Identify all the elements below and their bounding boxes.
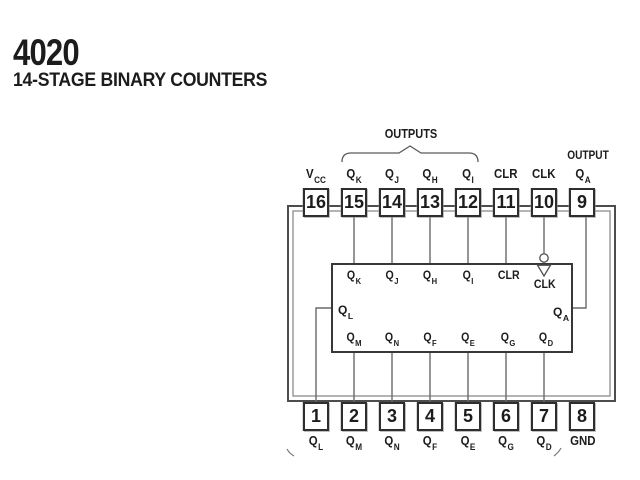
block-port-qd-base: Q <box>539 330 547 344</box>
block-port-qf: QF <box>423 330 436 346</box>
pin-12-number-box: 12 <box>455 188 481 217</box>
pin-11-name: CLR <box>494 166 518 184</box>
block-port-qi-sub: I <box>471 276 473 286</box>
block-port-qk-sub: K <box>356 276 361 286</box>
pin-5-name-sub: E <box>470 442 475 452</box>
pin-4-name: QF <box>423 433 437 451</box>
block-port-qh-sub: H <box>432 276 437 286</box>
block-port-qn-sub: N <box>394 338 399 348</box>
block-port-qk-base: Q <box>347 268 355 282</box>
datasheet-page: { "header": { "part_number": "4020", "de… <box>0 0 640 480</box>
pin-11-name-base: CLR <box>494 166 518 181</box>
pin-12-name-base: Q <box>462 166 471 181</box>
pin-13-number-box: 13 <box>417 188 443 217</box>
output-single-label: OUTPUT <box>567 150 609 162</box>
pin-13-name-sub: H <box>432 175 438 185</box>
pin-1-name-sub: L <box>318 442 323 452</box>
clock-bubble-icon <box>540 254 548 262</box>
pin-3-name: QN <box>384 433 399 451</box>
pin-6-number-box: 6 <box>493 402 519 431</box>
pin-2-name-base: Q <box>346 433 355 448</box>
pin-9-name-sub: A <box>585 175 591 185</box>
pin-12-name-sub: I <box>472 175 474 185</box>
pin-10-number-box: 10 <box>531 188 557 217</box>
block-port-qe-sub: E <box>470 338 475 348</box>
pin-5-name-base: Q <box>461 433 470 448</box>
part-number-title: 4020 <box>13 32 79 74</box>
block-port-qd: QD <box>539 330 553 346</box>
block-port-clk: CLK <box>534 277 556 293</box>
pin-12-name: QI <box>462 166 474 184</box>
pin-2-number-box: 2 <box>341 402 367 431</box>
pin-4-number-box: 4 <box>417 402 443 431</box>
pin-10-name-base: CLK <box>532 166 556 181</box>
pin-15-number-box: 15 <box>341 188 367 217</box>
pin-16-name-base: V <box>306 166 314 181</box>
block-port-qg-sub: G <box>509 338 515 348</box>
block-port-ql-base: Q <box>338 303 347 317</box>
block-port-qg: QG <box>501 330 516 346</box>
pin-15-name: QK <box>346 166 361 184</box>
pin-9-name: QA <box>575 166 590 184</box>
pin-6-name-base: Q <box>498 433 507 448</box>
pin-10-name: CLK <box>532 166 556 184</box>
pin-9-number-box: 9 <box>569 188 595 217</box>
block-port-ql: QL <box>338 303 353 319</box>
block-port-qm-base: Q <box>347 330 355 344</box>
block-port-qn-base: Q <box>385 330 393 344</box>
block-port-qj-sub: J <box>394 276 398 286</box>
pin-16-name: VCC <box>306 166 326 184</box>
pin-13-name: QH <box>422 166 437 184</box>
pin-14-name-sub: J <box>394 175 399 185</box>
block-port-qj-base: Q <box>386 268 394 282</box>
pin-1-name: QL <box>309 433 323 451</box>
pin-14-name: QJ <box>385 166 399 184</box>
block-port-clk-base: CLK <box>534 277 556 291</box>
block-port-qf-sub: F <box>432 338 437 348</box>
pin-16-name-sub: CC <box>314 175 326 185</box>
block-port-qd-sub: D <box>548 338 553 348</box>
pin-1-name-base: Q <box>309 433 318 448</box>
block-port-qf-base: Q <box>423 330 431 344</box>
pin-14-number-box: 14 <box>379 188 405 217</box>
block-port-qh: QH <box>423 268 437 284</box>
pin-14-name-base: Q <box>385 166 394 181</box>
pin-9-name-base: Q <box>575 166 584 181</box>
block-port-qa: QA <box>553 305 569 321</box>
pin-4-name-sub: F <box>432 442 437 452</box>
pin-8-name: GND <box>570 433 596 451</box>
pin-7-number-box: 7 <box>531 402 557 431</box>
pin-5-number-box: 5 <box>455 402 481 431</box>
outputs-group-label: OUTPUTS <box>385 127 438 141</box>
pin-7-name-sub: D <box>546 442 552 452</box>
block-port-qe-base: Q <box>461 330 469 344</box>
pin-11-number-box: 11 <box>493 188 519 217</box>
block-port-qg-base: Q <box>501 330 509 344</box>
pin-7-name-base: Q <box>536 433 545 448</box>
pin-2-name-sub: M <box>355 442 362 452</box>
block-port-qn: QN <box>385 330 399 346</box>
block-port-ql-sub: L <box>348 311 353 321</box>
block-port-qe: QE <box>461 330 475 346</box>
block-port-qm: QM <box>347 330 362 346</box>
block-port-qa-base: Q <box>553 305 562 319</box>
pin-1-number-box: 1 <box>303 402 329 431</box>
block-port-qi-base: Q <box>463 268 471 282</box>
block-port-qj: QJ <box>386 268 399 284</box>
block-port-qk: QK <box>347 268 361 284</box>
block-port-qh-base: Q <box>423 268 431 282</box>
block-port-qm-sub: M <box>355 338 361 348</box>
pin-3-number-box: 3 <box>379 402 405 431</box>
block-port-clr: CLR <box>498 268 520 284</box>
bottom-brace-right-tick <box>554 448 561 456</box>
pin-13-name-base: Q <box>422 166 431 181</box>
block-port-clr-base: CLR <box>498 268 520 282</box>
pin-8-number-box: 8 <box>569 402 595 431</box>
pin-2-name: QM <box>346 433 362 451</box>
block-port-qi: QI <box>463 268 474 284</box>
pin-6-name-sub: G <box>507 442 513 452</box>
pin-8-name-base: GND <box>570 433 595 448</box>
pin-3-name-sub: N <box>394 442 400 452</box>
pin-15-name-base: Q <box>346 166 355 181</box>
pin-7-name: QD <box>536 433 551 451</box>
pin-4-name-base: Q <box>423 433 432 448</box>
pin-16-number-box: 16 <box>303 188 329 217</box>
pin-3-name-base: Q <box>384 433 393 448</box>
part-description: 14-STAGE BINARY COUNTERS <box>13 70 267 92</box>
pin-6-name: QG <box>498 433 514 451</box>
bottom-brace-left-tick <box>287 449 294 456</box>
block-port-qa-sub: A <box>563 313 569 323</box>
pin-15-name-sub: K <box>356 175 362 185</box>
pin-5-name: QE <box>461 433 476 451</box>
outputs-brace <box>342 146 478 162</box>
